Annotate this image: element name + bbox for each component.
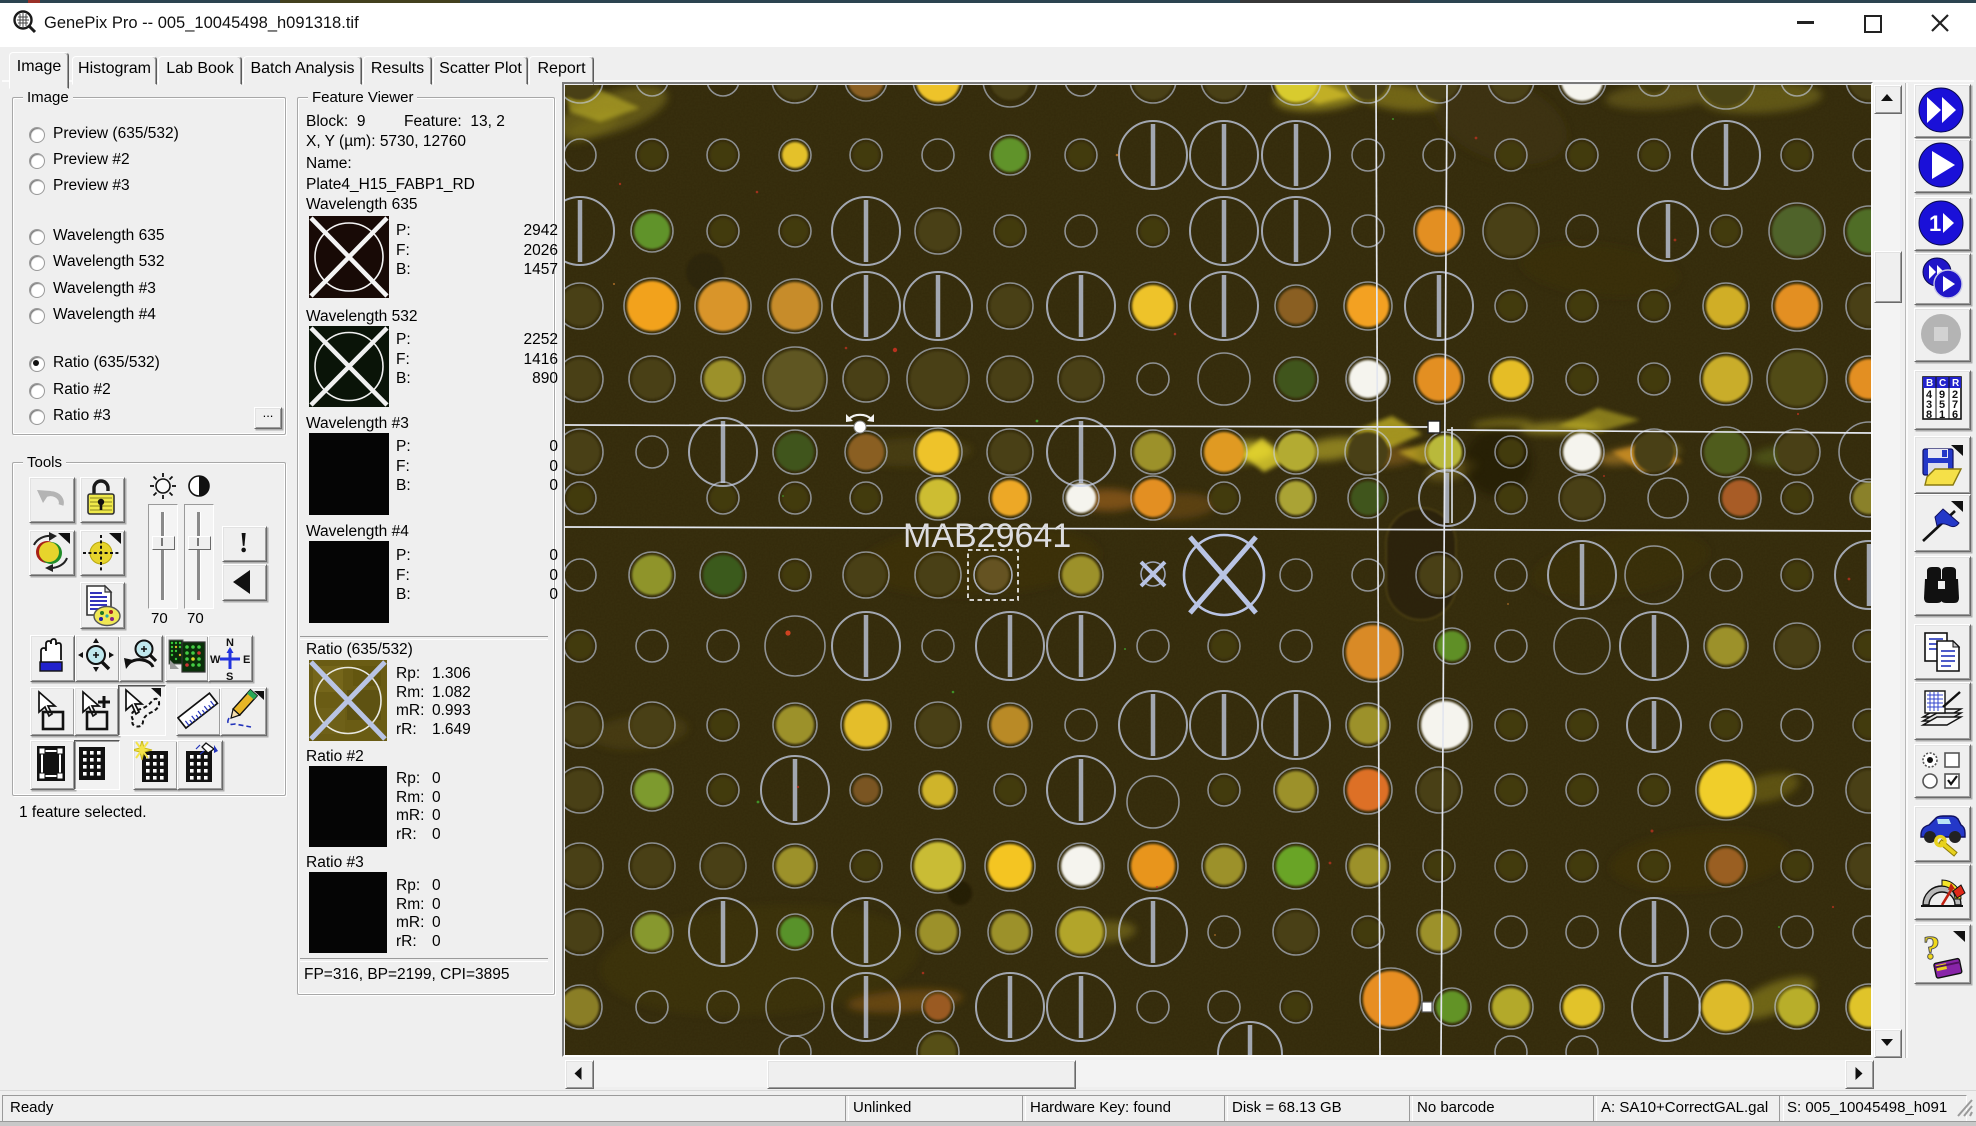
svg-text:8: 8: [1926, 409, 1932, 421]
svg-text:6: 6: [1952, 409, 1958, 421]
svg-text:S: S: [226, 671, 233, 681]
svg-text:W: W: [210, 654, 221, 666]
svg-text:1: 1: [1929, 211, 1941, 236]
svg-text:R: R: [1952, 378, 1960, 389]
svg-text:C: C: [1939, 378, 1946, 389]
svg-text:1: 1: [1939, 409, 1945, 421]
svg-text:?: ?: [1923, 930, 1940, 967]
svg-text:B: B: [1926, 378, 1933, 389]
svg-text:!: !: [239, 528, 248, 558]
svg-text:E: E: [243, 654, 250, 666]
